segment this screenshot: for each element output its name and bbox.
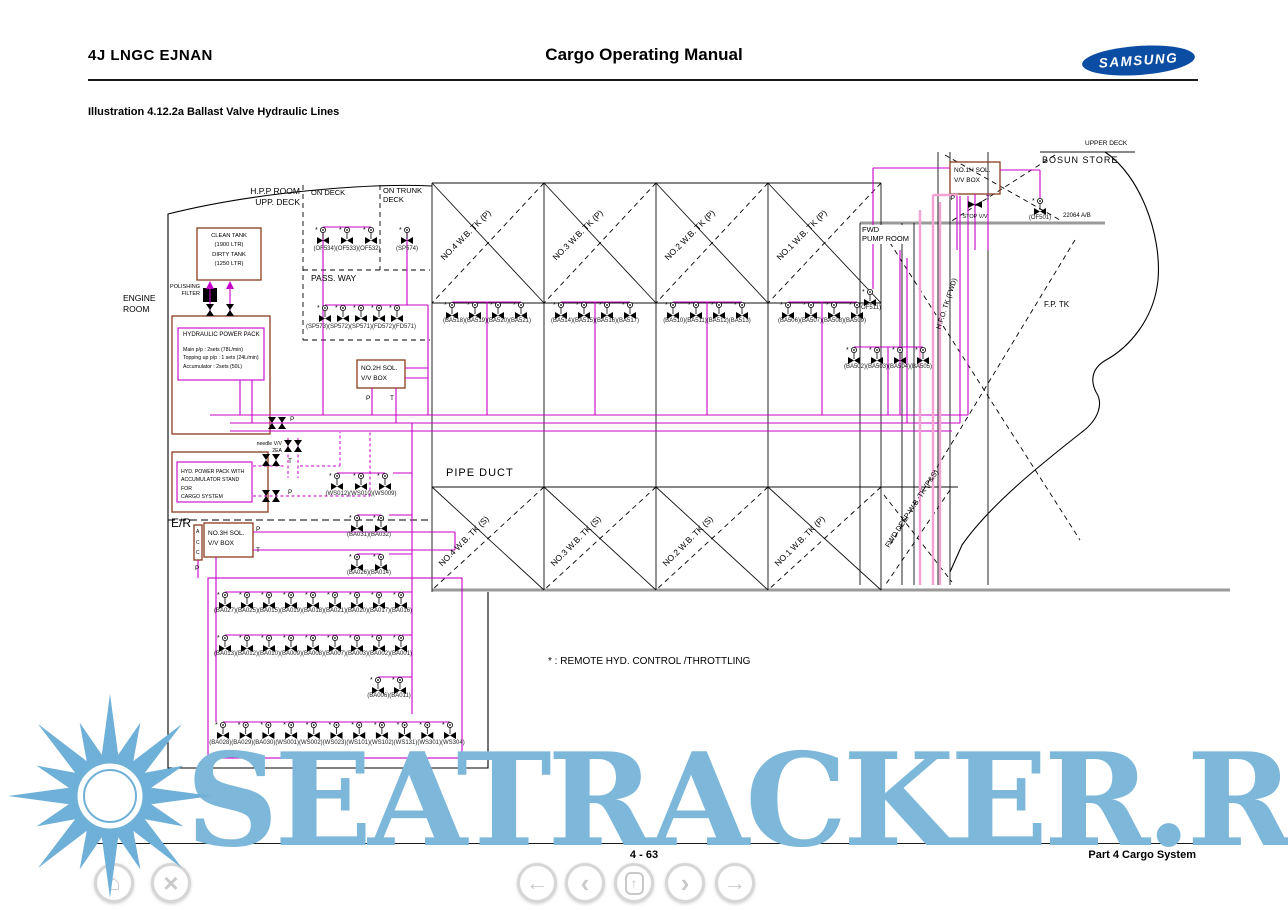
- svg-text:P: P: [195, 565, 199, 572]
- home-icon: ⌂: [107, 870, 120, 896]
- sol1-label: NO.1H SOL. V/V BOX: [954, 166, 990, 186]
- svg-text:(WS012)(WS010)(WS009): (WS012)(WS010)(WS009): [325, 491, 396, 497]
- hpp-room-label: H.P.P ROOM UPP. DECK: [214, 186, 300, 207]
- hyd-pack-cargo-label: HYD. POWER PACK WITH ACCUMULATOR STAND F…: [181, 468, 251, 501]
- valve-group-ba006: (BA006)(BA011): [367, 677, 411, 699]
- samsung-logo-text: SAMSUNG: [1098, 50, 1178, 71]
- doc-ref-label: 22064 A/B: [1063, 213, 1091, 221]
- hull-structure: [168, 152, 1230, 768]
- upper-deck-label: UPPER DECK: [1085, 140, 1127, 148]
- svg-text:(BA006)(BA011): (BA006)(BA011): [367, 693, 411, 699]
- valve-group-passway: (SP573)(SP572)(SP571)(FD572)(FD571): [306, 305, 416, 330]
- acc-label: A C C: [196, 527, 200, 559]
- svg-text:P: P: [366, 395, 370, 402]
- valve-group-row-b: (BA013)(BA012)(BA010)(BA009)(BA008)(BA00…: [214, 635, 412, 657]
- svg-text:(OF501): (OF501): [1029, 215, 1051, 221]
- on-trunk-deck-label: ON TRUNK DECK: [383, 186, 422, 205]
- svg-text:T: T: [256, 547, 260, 554]
- valve-group-row-a: (BA027)(BA025)(BA015)(BA019)(BA018)(BA02…: [214, 592, 412, 614]
- remote-control-note: * : REMOTE HYD. CONTROL /THROTTLING: [548, 656, 750, 669]
- svg-text:T: T: [986, 195, 990, 202]
- home-button[interactable]: ⌂: [94, 863, 134, 903]
- footer-section: Part 4 Cargo System: [1088, 849, 1196, 861]
- valve-group-ba026: (BA026)(BA014): [347, 554, 391, 576]
- svg-text:T: T: [390, 395, 394, 402]
- seatracker-watermark: SEATRACKER.RU: [186, 737, 1288, 865]
- equipment-boxes: [172, 162, 1000, 758]
- clean-dirty-tank-label: CLEAN TANK (1900 LTR) DIRTY TANK (1250 L…: [199, 232, 259, 269]
- svg-text:(SP573)(SP572)(SP571)(FD572)(F: (SP573)(SP572)(SP571)(FD572)(FD571): [306, 324, 416, 330]
- close-icon: ×: [163, 868, 178, 899]
- svg-text:P: P: [256, 526, 260, 533]
- svg-text:T: T: [288, 458, 292, 465]
- manual-page: 4J LNGC EJNAN Cargo Operating Manual SAM…: [0, 0, 1288, 910]
- svg-text:(BA506)(BA507)(BA508)(BA509): (BA506)(BA507)(BA508)(BA509): [778, 318, 866, 324]
- svg-text:P: P: [288, 489, 292, 496]
- pass-way-label: PASS. WAY: [311, 273, 356, 284]
- sol3-label: NO.3H SOL. V/V BOX: [208, 529, 244, 549]
- bosun-store-label: BOSUN STORE: [1042, 155, 1118, 166]
- svg-text:P: P: [290, 416, 294, 423]
- svg-text:(BA510)(BA511)(BA512)(BA513): (BA510)(BA511)(BA512)(BA513): [663, 318, 751, 324]
- polishing-filter-label: POLISHING FILTER: [148, 284, 200, 298]
- svg-text:P: P: [951, 195, 955, 202]
- valve-group-of501: (OF501): [1029, 198, 1051, 221]
- stop-valve-label: STOP V/V: [962, 214, 988, 220]
- hpp-specs-label: Main p/p : 2sets (78L/min) Topping up p/…: [183, 346, 259, 371]
- svg-text:(BA026)(BA014): (BA026)(BA014): [347, 570, 391, 576]
- close-button[interactable]: ×: [151, 863, 191, 903]
- svg-text:(BA502)(BA503)(BA504)(BA505): (BA502)(BA503)(BA504)(BA505): [844, 364, 932, 370]
- svg-text:(BA514)(BA515)(BA516)(BA517): (BA514)(BA515)(BA516)(BA517): [551, 318, 639, 324]
- needle-valve-label: needle V/V 2EA: [240, 441, 282, 454]
- svg-text:(OF511): (OF511): [859, 305, 881, 311]
- pipe-duct-label: PIPE DUCT: [446, 467, 514, 481]
- svg-text:(BA027)(BA025)(BA015)(BA019)(B: (BA027)(BA025)(BA015)(BA019)(BA018)(BA02…: [214, 608, 412, 614]
- svg-text:(BA013)(BA012)(BA010)(BA009)(B: (BA013)(BA012)(BA010)(BA009)(BA008)(BA00…: [214, 651, 412, 657]
- er-label: E/R: [171, 516, 191, 531]
- sol2-label: NO.2H SOL. V/V BOX: [361, 364, 397, 384]
- svg-text:(BA518)(BA519)(BA520)(BA521): (BA518)(BA519)(BA520)(BA521): [443, 318, 531, 324]
- hpp-title-label: HYDRAULIC POWER PACK: [183, 332, 263, 340]
- fwd-pump-room-label: FWD PUMP ROOM: [862, 225, 913, 244]
- svg-text:(SP574): (SP574): [396, 246, 418, 252]
- valve-group-ba031: (BA031)(BA032): [347, 515, 391, 538]
- svg-text:(BA031)(BA032): (BA031)(BA032): [347, 532, 391, 538]
- svg-text:(OF534)(OF533)(OF532): (OF534)(OF533)(OF532): [313, 246, 380, 252]
- valve-group-ws012: (WS012)(WS010)(WS009): [325, 473, 396, 497]
- fp-tk-label: F.P. TK: [1044, 300, 1069, 310]
- on-deck-label: ON DECK: [311, 188, 345, 197]
- header-rule: [88, 79, 1198, 81]
